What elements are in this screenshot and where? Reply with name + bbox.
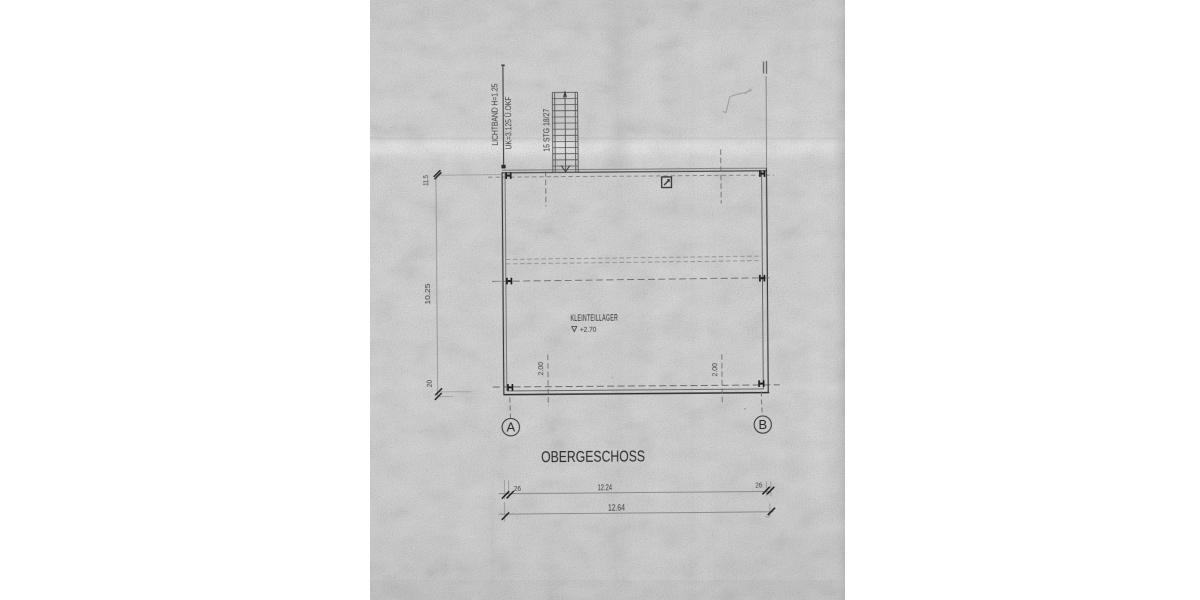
svg-text:26: 26	[755, 481, 762, 490]
svg-text:A: A	[506, 420, 515, 435]
svg-text:OBERGESCHOSS: OBERGESCHOSS	[541, 448, 645, 466]
svg-text:26: 26	[514, 484, 521, 493]
svg-text:LICHTBAND H=1.25: LICHTBAND H=1.25	[490, 83, 499, 146]
svg-text:2.00: 2.00	[536, 362, 545, 376]
svg-text:11.5: 11.5	[423, 175, 430, 186]
svg-text:B: B	[758, 417, 767, 432]
svg-text:12.64: 12.64	[608, 503, 625, 513]
svg-text:10.25: 10.25	[423, 283, 432, 304]
svg-text:2.00: 2.00	[710, 363, 719, 377]
svg-text:20: 20	[427, 380, 434, 388]
svg-text:KLEINTEILLAGER: KLEINTEILLAGER	[571, 312, 619, 322]
svg-text:UK=3.125 Ü.OKF: UK=3.125 Ü.OKF	[504, 96, 513, 149]
svg-text:12.24: 12.24	[598, 483, 613, 492]
svg-text:+2.70: +2.70	[580, 325, 597, 334]
svg-text:15 STG 18/27: 15 STG 18/27	[542, 108, 551, 152]
